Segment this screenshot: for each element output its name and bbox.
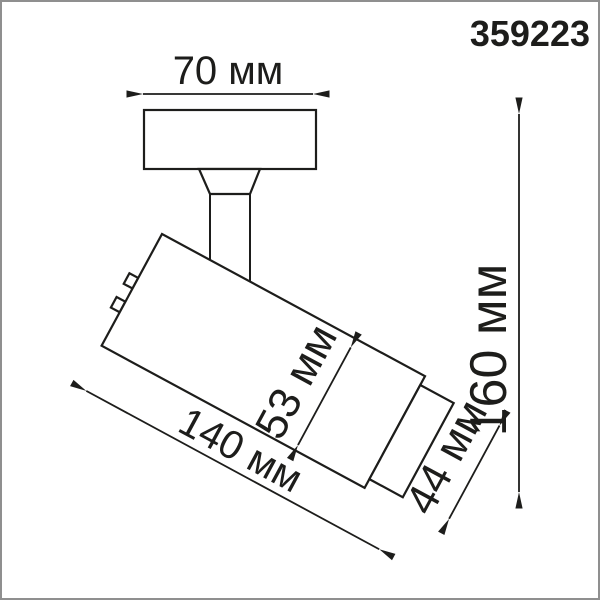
product-code: 359223 [470,13,590,54]
drawing-page: 359223 70 мм 160 мм [0,0,600,600]
stem-neck [199,169,260,194]
base-plate [144,110,316,169]
lamp-assembly: 53 мм 140 мм 44 мм [70,229,503,572]
technical-drawing: 359223 70 мм 160 мм [2,2,600,600]
dim-base-width-label: 70 мм [173,49,284,93]
dim-base-width: 70 мм [143,49,313,94]
